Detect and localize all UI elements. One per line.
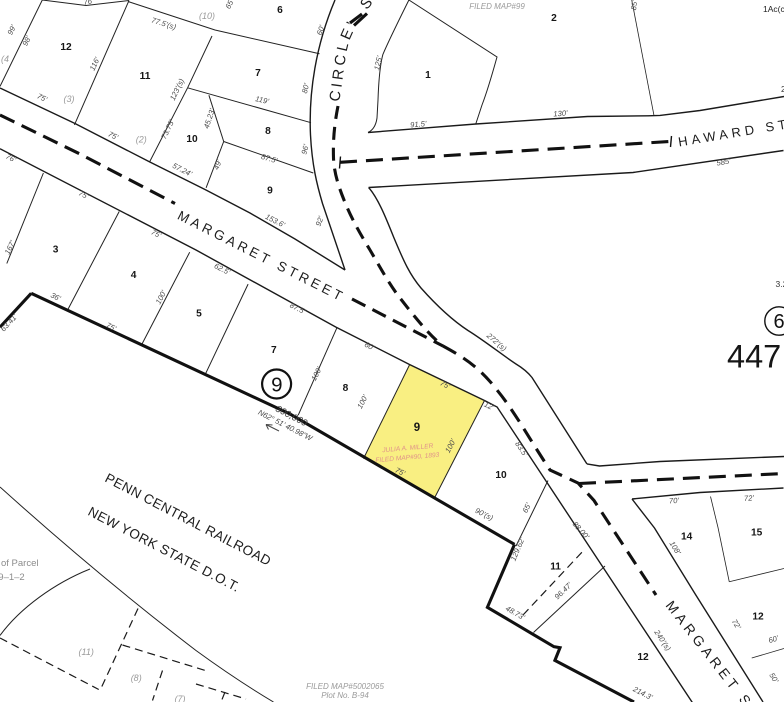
svg-text:3.2: 3.2 bbox=[776, 279, 784, 289]
svg-text:8: 8 bbox=[343, 383, 349, 394]
svg-text:(4: (4 bbox=[1, 54, 9, 64]
svg-text:(10): (10) bbox=[199, 11, 215, 21]
svg-text:130’: 130’ bbox=[553, 108, 568, 118]
svg-text:(2): (2) bbox=[136, 135, 147, 145]
svg-text:7: 7 bbox=[271, 345, 277, 356]
svg-text:4: 4 bbox=[131, 270, 137, 281]
svg-text:9: 9 bbox=[414, 422, 420, 434]
svg-text:(11): (11) bbox=[79, 647, 94, 657]
svg-text:91.5’: 91.5’ bbox=[410, 119, 428, 129]
svg-text:5: 5 bbox=[196, 309, 202, 320]
svg-text:6: 6 bbox=[773, 311, 784, 333]
svg-text:of Parcel: of Parcel bbox=[1, 558, 39, 569]
svg-text:12: 12 bbox=[637, 652, 649, 663]
svg-text:85’: 85’ bbox=[629, 0, 640, 11]
svg-text:72’: 72’ bbox=[744, 493, 755, 503]
svg-text:447: 447 bbox=[727, 339, 781, 375]
svg-text:12: 12 bbox=[752, 612, 764, 623]
svg-text:8: 8 bbox=[265, 126, 271, 137]
svg-text:11: 11 bbox=[140, 71, 151, 82]
svg-text:9: 9 bbox=[267, 186, 273, 197]
svg-text:11: 11 bbox=[550, 562, 561, 573]
svg-text:2: 2 bbox=[551, 13, 557, 24]
svg-text:10: 10 bbox=[186, 134, 198, 145]
svg-text:70’: 70’ bbox=[669, 496, 680, 506]
svg-text:FILED MAP#99: FILED MAP#99 bbox=[469, 2, 525, 11]
svg-text:3: 3 bbox=[53, 245, 59, 256]
svg-text:10: 10 bbox=[495, 470, 507, 481]
svg-text:1: 1 bbox=[425, 70, 431, 81]
svg-text:(8): (8) bbox=[131, 673, 142, 683]
svg-text:Plot No. B-94: Plot No. B-94 bbox=[321, 691, 369, 700]
svg-text:14: 14 bbox=[681, 532, 693, 543]
svg-text:9: 9 bbox=[271, 374, 282, 397]
svg-text:1Ac(c: 1Ac(c bbox=[763, 4, 784, 14]
svg-text:6: 6 bbox=[277, 5, 283, 16]
svg-text:FILED MAP#5002065: FILED MAP#5002065 bbox=[306, 682, 384, 691]
svg-text:15: 15 bbox=[751, 528, 763, 539]
svg-text:49–1–2: 49–1–2 bbox=[0, 572, 25, 583]
svg-text:(7): (7) bbox=[175, 694, 186, 702]
svg-text:12: 12 bbox=[60, 42, 72, 53]
svg-text:7: 7 bbox=[255, 68, 261, 79]
svg-text:(3): (3) bbox=[64, 94, 75, 104]
